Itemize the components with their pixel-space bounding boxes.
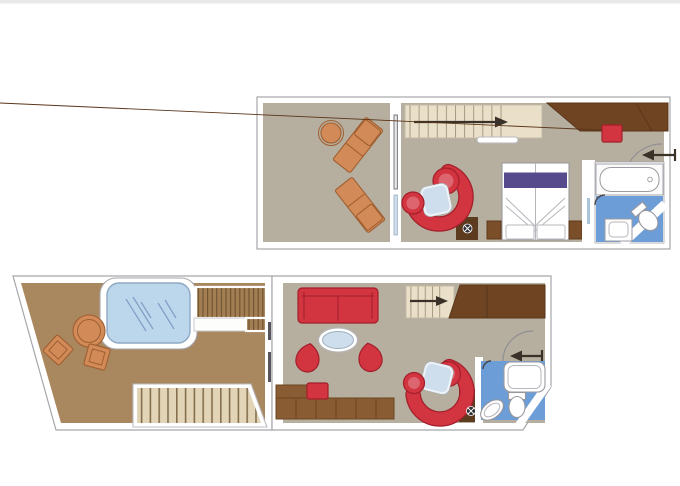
living-sofa bbox=[298, 288, 378, 323]
upper-bathroom bbox=[595, 162, 665, 244]
bathroom-glass bbox=[587, 198, 590, 224]
lower-bathroom bbox=[475, 357, 548, 425]
oval-table bbox=[319, 328, 358, 352]
deck-steps bbox=[194, 287, 266, 331]
deck-platform bbox=[194, 318, 246, 331]
wheel-icon bbox=[467, 407, 476, 416]
bathtub bbox=[596, 164, 663, 195]
nightstand-left bbox=[487, 221, 501, 239]
lower-stairs bbox=[406, 286, 454, 318]
top-border-strip bbox=[0, 0, 680, 4]
balcony-round-table bbox=[319, 121, 344, 146]
terrace-door-track bbox=[268, 322, 271, 340]
floor-plan-canvas bbox=[0, 0, 680, 486]
upper-deck-plan bbox=[0, 97, 676, 249]
lower-wardrobe bbox=[449, 285, 545, 318]
terrace-table bbox=[73, 315, 105, 347]
coffee-table bbox=[419, 360, 454, 395]
floor-plan-page bbox=[0, 0, 680, 486]
whirlpool bbox=[100, 278, 197, 349]
lower-deck-plan bbox=[13, 276, 551, 430]
stair-rail-ledge bbox=[477, 137, 518, 143]
sink bbox=[605, 219, 632, 241]
wheel-icon bbox=[463, 224, 472, 233]
desk-stool bbox=[307, 383, 328, 399]
coffee-table bbox=[419, 182, 453, 217]
nightstand-right bbox=[569, 221, 582, 239]
double-bed bbox=[502, 163, 569, 240]
balcony-door-leaf bbox=[394, 115, 397, 189]
upper-stool bbox=[602, 125, 622, 142]
terrace-door-track bbox=[268, 352, 271, 382]
shower bbox=[504, 362, 545, 392]
balcony-door-glass bbox=[394, 195, 397, 235]
toilet bbox=[509, 393, 526, 418]
bed-headboard bbox=[504, 173, 567, 189]
terrace-staircase bbox=[133, 384, 267, 427]
